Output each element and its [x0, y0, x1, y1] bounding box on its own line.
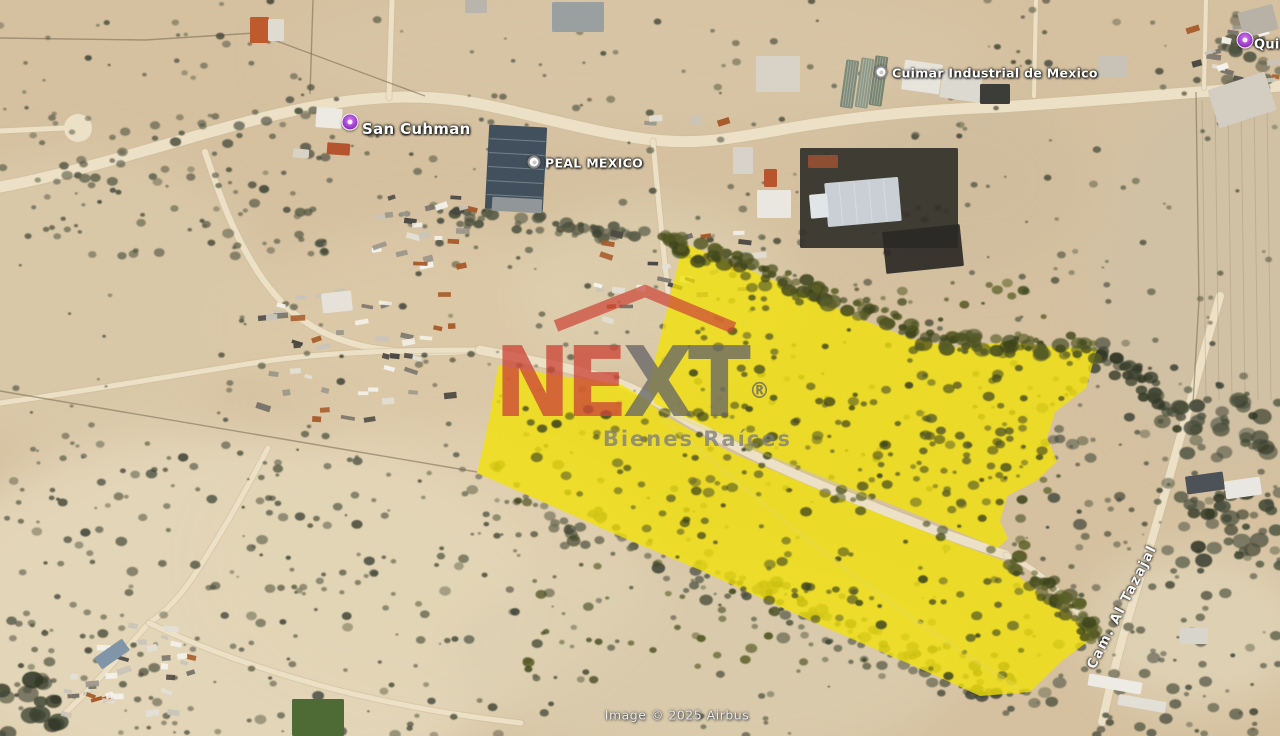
map-canvas [0, 0, 1280, 736]
satellite-map-image: San Cuhman Quint PEAL MEXICO Cuimar Indu… [0, 0, 1280, 736]
